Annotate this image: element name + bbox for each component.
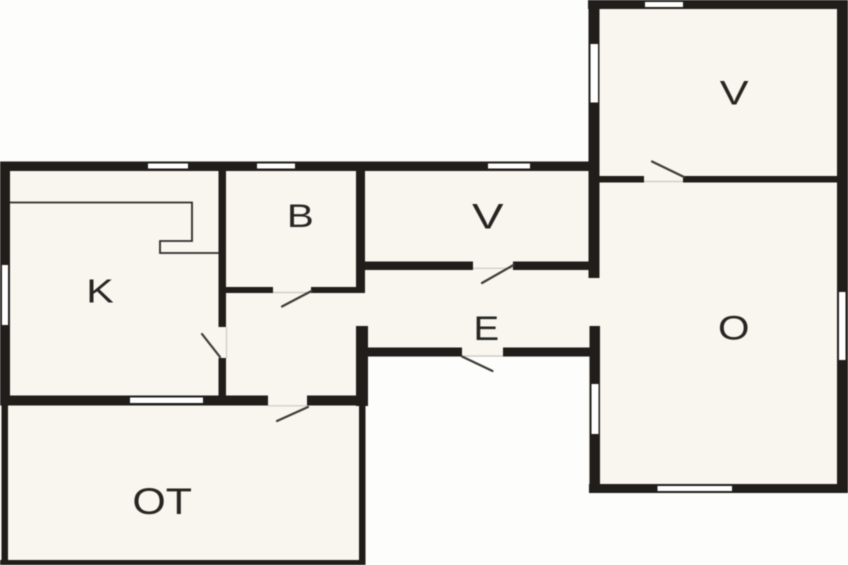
svg-text:OT: OT [132,482,192,523]
svg-text:K: K [86,272,114,309]
svg-text:B: B [287,198,314,234]
svg-text:O: O [718,309,749,347]
svg-text:E: E [473,309,499,347]
svg-text:V: V [472,197,504,237]
svg-text:V: V [720,75,749,113]
